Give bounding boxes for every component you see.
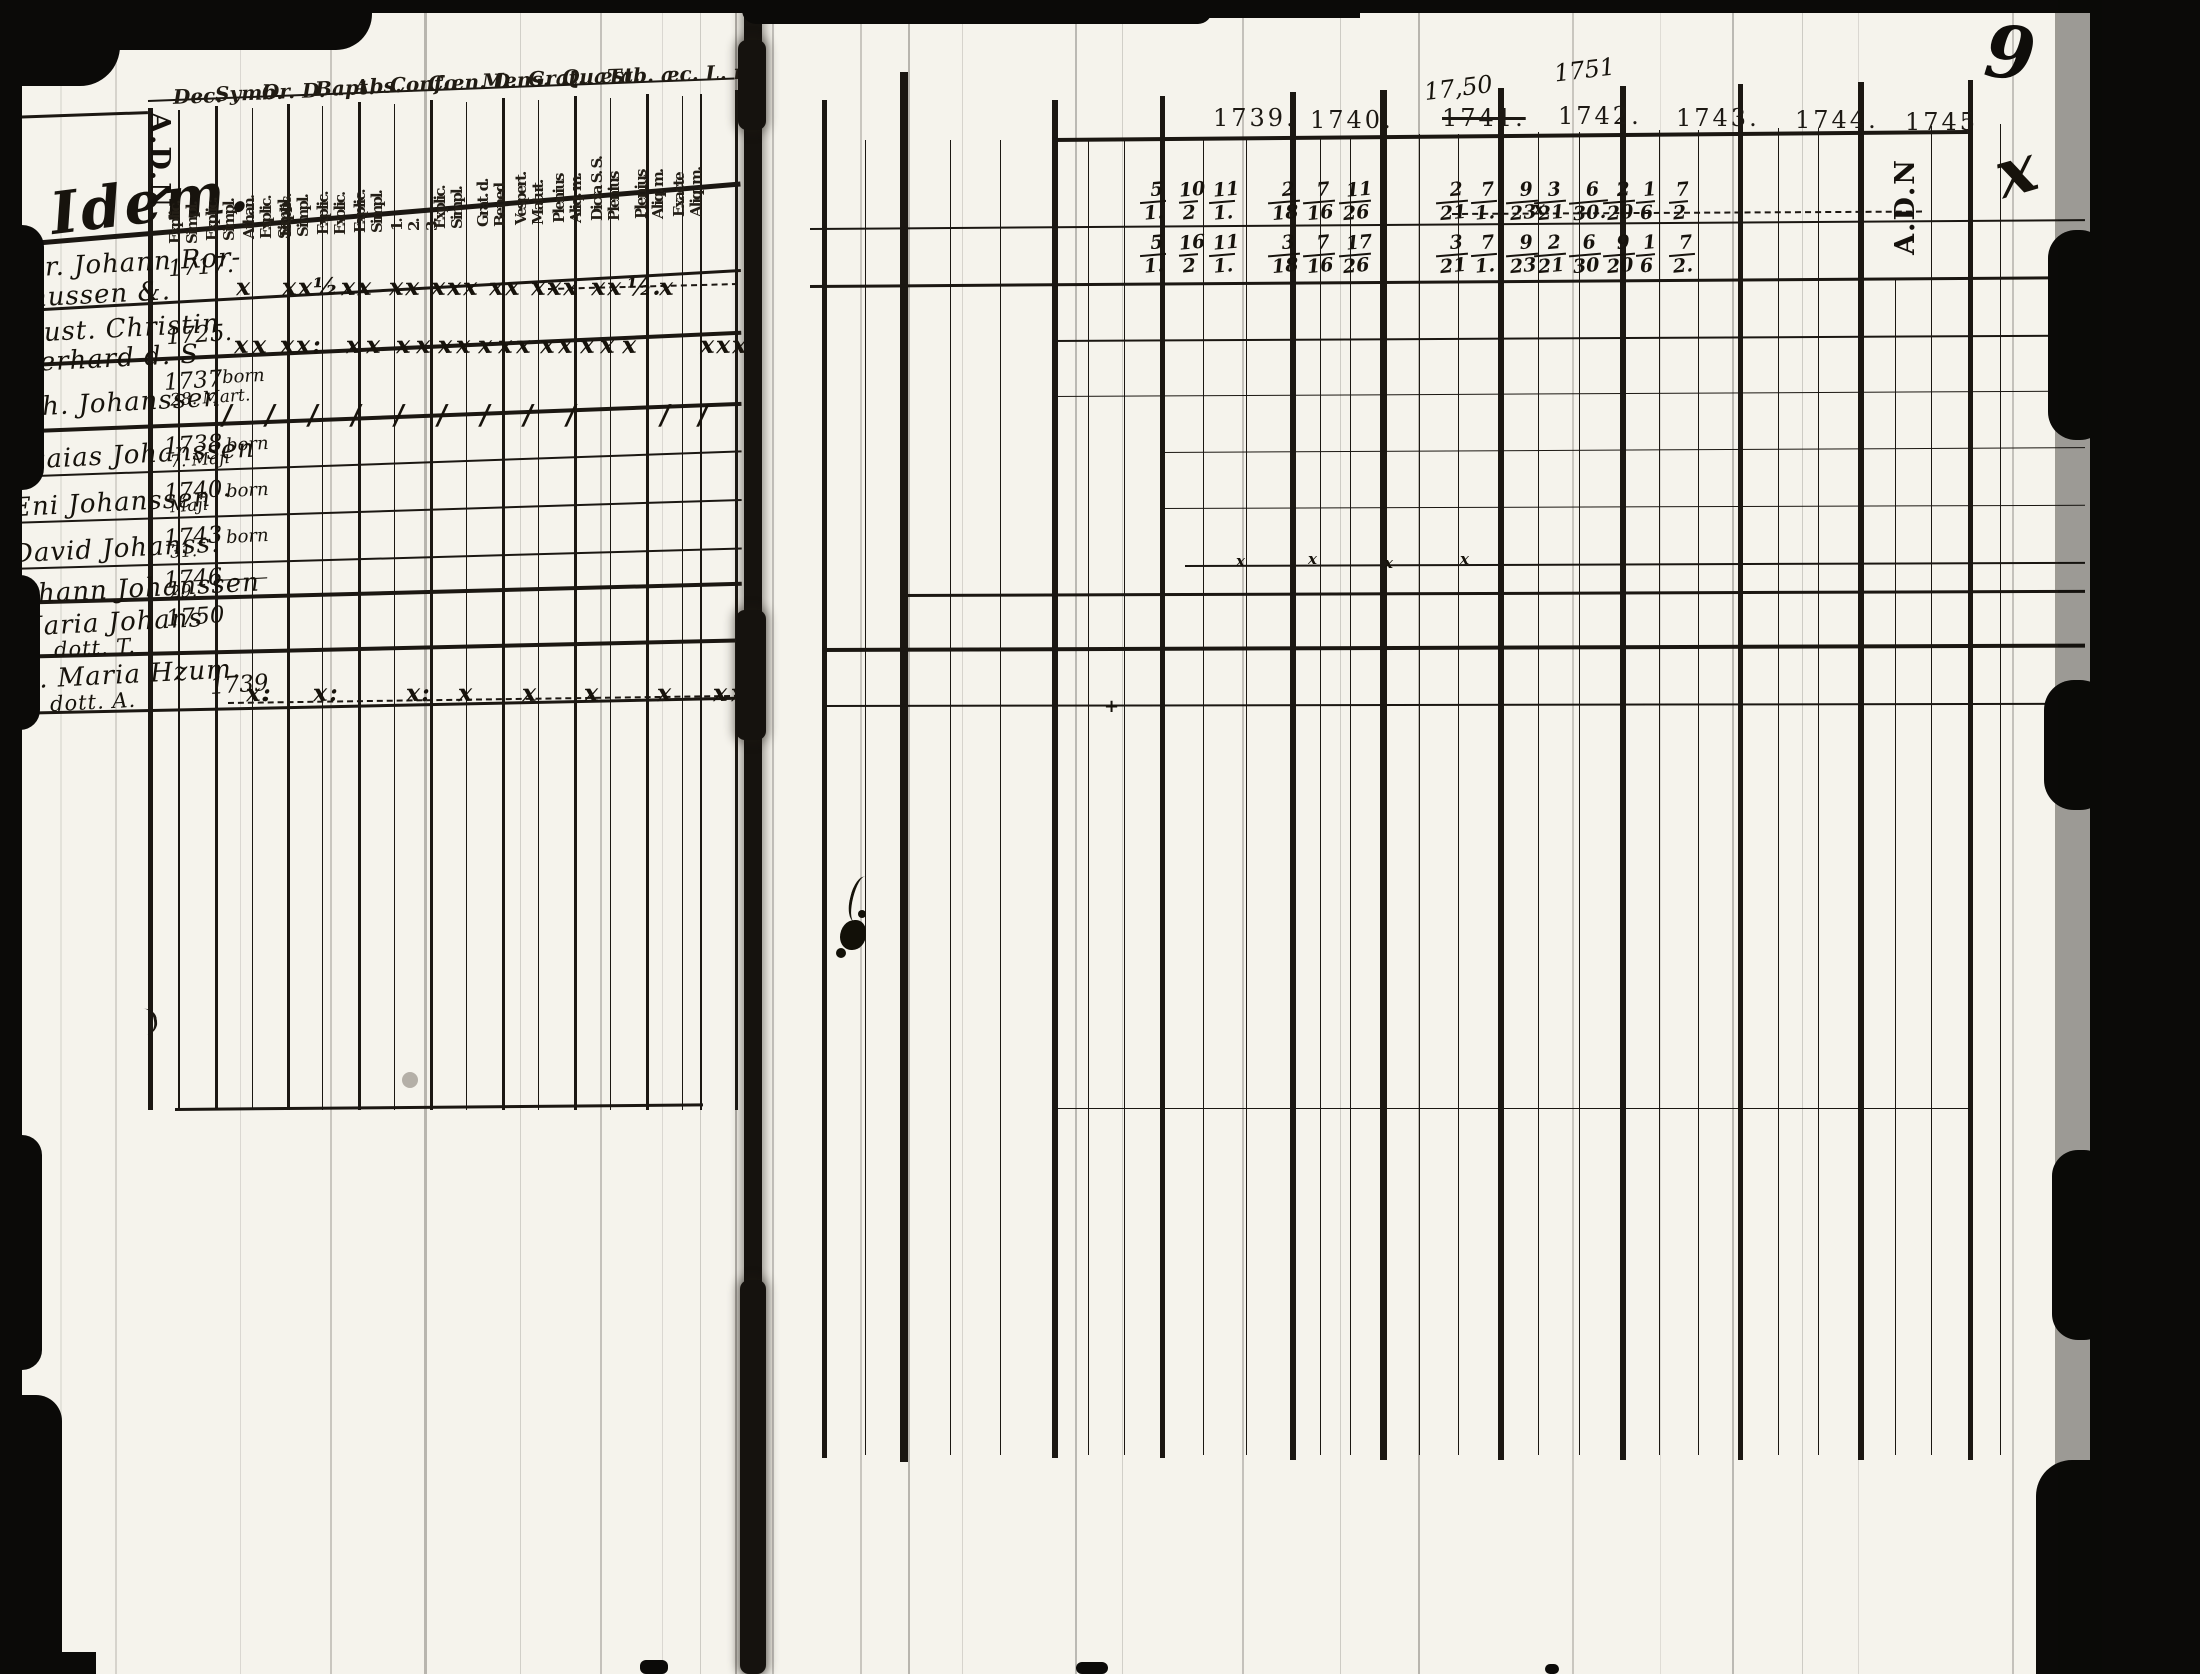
attendance-fraction: 111.	[1207, 180, 1237, 224]
fraction-part: 7	[1480, 233, 1495, 254]
attendance-fraction: 71.	[1469, 180, 1498, 224]
year-header: 1744.	[1795, 106, 1879, 134]
fraction-part: 21	[1436, 253, 1470, 278]
attendance-mark: x	[557, 330, 572, 359]
attendance-mark: x	[530, 272, 545, 301]
attendance-mark: x	[715, 330, 730, 359]
column-label-line: Simpl.	[296, 105, 311, 237]
scan-streak-artifact	[908, 0, 910, 1674]
column-label-line: Dicta S. S.	[590, 89, 605, 221]
grid-line-vertical	[950, 140, 951, 1455]
attendance-mark: x	[497, 330, 512, 359]
column-label-line: Simpl.	[450, 97, 465, 229]
grid-line-vertical	[538, 100, 539, 1110]
entry-year: 1717.	[167, 252, 235, 283]
grid-line-horizontal	[8, 111, 148, 119]
ink-blob	[836, 948, 846, 958]
attendance-mark: /	[264, 400, 275, 431]
grid-line-vertical	[1778, 128, 1779, 1455]
fraction-part: 2.	[1669, 253, 1697, 277]
entry-name: dott. A.	[49, 688, 136, 716]
column-label-line: Explic.	[433, 97, 448, 229]
column-label-line: Aliq. m.	[569, 91, 584, 223]
entry-year: 1725.	[165, 320, 233, 351]
entry-year: 28. Mart.	[169, 385, 251, 411]
grid-line-vertical	[1000, 140, 1001, 1455]
year-header: 1739.	[1213, 104, 1297, 132]
grid-line-vertical	[1052, 100, 1058, 1458]
grid-line-horizontal	[1052, 1108, 1968, 1109]
scan-edge-top-mid	[742, 0, 1212, 24]
grid-line-vertical	[822, 100, 827, 1458]
entry-year: 1750	[165, 602, 225, 632]
fraction-part: 2	[1547, 233, 1562, 254]
grid-line-vertical	[610, 98, 611, 1110]
grid-line-vertical	[1350, 136, 1351, 1455]
stray-ink-mark: x	[1460, 550, 1469, 568]
grid-line-vertical	[466, 102, 467, 1110]
scan-streak-artifact	[1242, 0, 1244, 1674]
attendance-fraction: 920	[1601, 233, 1637, 278]
ink-blob	[840, 920, 866, 950]
entry-year: 29.	[169, 581, 197, 603]
grid-line-vertical	[1698, 130, 1699, 1455]
fraction-part: 7	[1480, 180, 1495, 201]
scan-streak-artifact	[860, 0, 862, 1674]
column-label-line: Explic.	[279, 105, 294, 237]
attendance-fraction: 221	[1434, 180, 1470, 225]
year-header: 1742.	[1558, 102, 1642, 130]
attendance-fraction: 16	[1634, 233, 1657, 277]
column-label-line: Explic.	[205, 109, 220, 241]
column-label-vertical: PleniusAliq. m.	[552, 91, 585, 223]
attendance-mark: x	[233, 330, 248, 359]
header-abbreviation: Tab. æc. L. n.	[607, 59, 756, 88]
grid-line-vertical	[502, 98, 505, 1110]
attendance-mark: /	[221, 400, 232, 431]
attendance-mark: /	[350, 400, 361, 431]
attendance-mark: x	[340, 272, 355, 301]
attendance-fraction: 218	[1266, 180, 1302, 225]
stray-ink-mark: x	[1384, 554, 1393, 572]
attendance-mark: x	[295, 330, 310, 359]
attendance-fraction: 72.	[1667, 233, 1696, 277]
attendance-mark: x	[579, 330, 594, 359]
fraction-part: 9	[1616, 233, 1631, 254]
attendance-mark: x	[415, 330, 430, 359]
attendance-fraction: 321	[1434, 233, 1470, 278]
grid-line-vertical	[1538, 132, 1539, 1455]
column-label-line: Simpl.	[370, 101, 385, 233]
fraction-part: 17	[1345, 232, 1373, 254]
entry-year: 7. Maji	[169, 448, 230, 472]
entry-note: born	[225, 525, 269, 548]
scan-streak-artifact	[1075, 0, 1077, 1674]
attendance-fraction: 318	[1266, 233, 1302, 278]
attendance-mark: x	[345, 330, 360, 359]
attendance-mark: :	[261, 678, 271, 707]
scan-edge-bottom-left	[0, 1652, 96, 1674]
column-label-vertical: Dicta S. S.Plenius	[590, 89, 623, 221]
attendance-mark: /	[659, 400, 670, 431]
attendance-mark: x	[462, 272, 477, 301]
attendance-mark: /	[522, 400, 533, 431]
fraction-part: 7	[1675, 180, 1690, 201]
grid-line-vertical	[700, 94, 702, 1110]
year-header: 1741.	[1442, 104, 1526, 132]
fraction-part: 1	[1642, 180, 1657, 201]
attendance-mark: x	[395, 330, 410, 359]
right-page-number: 9	[1981, 8, 2040, 98]
column-label-line: Vespert.	[514, 93, 529, 225]
attendance-mark: /	[307, 400, 318, 431]
column-label-vertical: PleniusAliq. m.	[634, 87, 667, 219]
grid-line-horizontal	[810, 276, 2085, 288]
fraction-part: 1.	[1140, 253, 1168, 277]
grid-line-vertical	[682, 96, 683, 1110]
fraction-part: 21	[1534, 253, 1568, 278]
fraction-part: 20	[1603, 253, 1637, 278]
scan-streak-artifact	[662, 0, 663, 1674]
grid-line-vertical	[900, 72, 908, 1462]
column-label-line: Plenius	[552, 91, 567, 223]
grid-line-vertical	[1931, 126, 1932, 1455]
column-label-line: Grat. d.	[476, 95, 491, 227]
fraction-part: 2	[1669, 200, 1690, 224]
column-label-line: Exolic.	[333, 103, 348, 235]
column-label-line: Aliq. m.	[651, 87, 666, 219]
ink-squiggle	[845, 874, 875, 923]
column-label-line: Plenius	[634, 87, 649, 219]
column-label-line: Plenius	[607, 89, 622, 221]
attendance-mark: x	[477, 330, 492, 359]
scan-streak-artifact	[1660, 0, 1661, 1674]
fraction-part: 5	[1149, 180, 1164, 201]
column-label-vertical: Explic.Simpl.	[433, 97, 466, 229]
attendance-fraction: 162	[1173, 233, 1203, 277]
attendance-mark: x	[405, 678, 420, 707]
grid-line-vertical	[322, 106, 323, 1110]
fraction-part: 2	[1449, 180, 1464, 201]
attendance-mark: x	[404, 272, 419, 301]
attendance-mark: x	[539, 330, 554, 359]
attendance-mark: x	[281, 272, 296, 301]
grid-line-vertical	[1419, 134, 1420, 1455]
column-label-line: Aliq. m.	[689, 85, 704, 217]
attendance-mark: x	[455, 330, 470, 359]
attendance-mark: x	[562, 272, 577, 301]
fraction-part: 7	[1316, 180, 1331, 201]
stray-ink-mark: x	[1532, 196, 1546, 221]
book-gutter-blob	[738, 40, 766, 130]
fraction-part: 6	[1636, 200, 1657, 224]
attendance-mark: ½.	[627, 271, 661, 301]
scan-streak-artifact	[1732, 0, 1734, 1674]
column-label-line: Matut.	[531, 93, 546, 225]
fraction-part: 3	[1449, 233, 1464, 254]
attendance-mark: x	[365, 330, 380, 359]
book-gutter-blob	[736, 610, 766, 740]
attendance-fraction: 51.	[1138, 233, 1167, 277]
entry-year: Maji	[169, 495, 209, 518]
attendance-mark: x	[583, 678, 598, 707]
attendance-mark: x	[606, 272, 621, 301]
attendance-fraction: 716	[1301, 233, 1337, 278]
column-label-line: Simpl.	[185, 112, 200, 244]
paper-smudge	[402, 1072, 418, 1088]
grid-line-vertical	[430, 100, 433, 1110]
stray-ink-mark: x	[1308, 550, 1317, 568]
attendance-mark: x	[515, 330, 530, 359]
year-header: 1745	[1905, 108, 1978, 136]
column-label-line: 1.	[390, 99, 405, 231]
attendance-mark: /	[565, 400, 576, 431]
entry-name: dott. T.	[53, 634, 136, 662]
attendance-mark: x	[446, 272, 461, 301]
grid-line-vertical	[1320, 136, 1321, 1455]
scan-streak-artifact	[520, 0, 521, 1674]
grid-line-vertical	[394, 104, 395, 1110]
column-label-vertical: ExacteAliq. m.	[672, 85, 705, 217]
grid-line-vertical	[287, 104, 290, 1110]
column-label-vertical: Grat. d.Bened.	[476, 95, 509, 227]
fraction-part: 6	[1582, 233, 1597, 254]
fraction-part: 1.	[1140, 200, 1168, 224]
column-label-line: Explic.	[316, 103, 331, 235]
attendance-mark: x	[356, 272, 371, 301]
attendance-mark: /	[697, 400, 708, 431]
scan-streak-artifact	[1802, 0, 1803, 1674]
attendance-mark: x	[621, 330, 636, 359]
attendance-fraction: 630	[1567, 233, 1603, 278]
scan-streak-artifact	[330, 0, 332, 1674]
fraction-part: 26	[1339, 200, 1373, 225]
grid-line-vertical	[646, 94, 649, 1110]
attendance-mark: x	[437, 330, 452, 359]
attendance-fraction: 220	[1601, 180, 1637, 225]
stray-ink-mark: x	[1986, 128, 2045, 214]
attendance-fraction: 1726	[1337, 233, 1373, 278]
fraction-part: 20	[1603, 200, 1637, 225]
grid-line-vertical	[1620, 86, 1626, 1460]
grid-line-vertical	[1968, 80, 1973, 1460]
grid-line-vertical	[1124, 140, 1125, 1455]
attendance-fraction: 1126	[1337, 180, 1373, 225]
grid-line-vertical	[1380, 90, 1387, 1460]
entry-note: born	[225, 433, 269, 456]
attendance-mark: /	[436, 400, 447, 431]
attendance-fraction: 102	[1173, 180, 1203, 224]
fraction-part: 1	[1642, 233, 1657, 254]
column-label-line: Exacte	[672, 85, 687, 217]
entry-note: ———	[213, 567, 268, 591]
column-label-vertical: Explic.Simpl.	[353, 101, 386, 233]
attendance-mark: x	[699, 330, 714, 359]
attendance-mark: x	[658, 272, 673, 301]
fraction-part: 16	[1303, 200, 1337, 225]
scan-edge-left-blob	[0, 1395, 62, 1674]
column-label-line: Athan.	[242, 107, 257, 239]
edge-column-header-adn: A.D.N	[1890, 158, 1921, 255]
grid-line-vertical	[1246, 140, 1247, 1455]
scan-edge-right-fringe	[2058, 0, 2102, 1674]
entry-note: born	[225, 479, 269, 502]
fraction-part: 2	[1179, 253, 1200, 277]
attendance-mark: ½	[313, 272, 339, 302]
grid-line-vertical	[1858, 82, 1864, 1460]
grid-line-vertical	[1290, 92, 1296, 1460]
fraction-part: 30	[1569, 253, 1603, 278]
grid-line-vertical	[358, 102, 361, 1110]
fraction-part: 7	[1316, 233, 1331, 254]
fraction-part: 26	[1339, 253, 1373, 278]
ink-hook-mark	[142, 1007, 158, 1035]
fraction-part: 11	[1212, 232, 1240, 254]
fraction-part: 1.	[1209, 253, 1237, 277]
year-header: 1743.	[1676, 104, 1760, 132]
scan-streak-artifact	[962, 0, 963, 1674]
attendance-mark: x	[599, 330, 614, 359]
stray-ink-mark: x	[1236, 552, 1245, 570]
attendance-fraction: 72	[1667, 180, 1690, 224]
attendance-mark: x	[388, 272, 403, 301]
attendance-mark: x	[546, 272, 561, 301]
attendance-fraction: 16	[1634, 180, 1657, 224]
column-label-line: Explic.	[353, 101, 368, 233]
scan-edge-top-mid	[1150, 0, 1360, 18]
book-gutter-blob	[740, 1280, 766, 1674]
grid-line-vertical	[1498, 88, 1504, 1460]
attendance-fraction: 221	[1532, 233, 1568, 278]
column-label-line: Bened.	[493, 95, 508, 227]
fraction-part: 18	[1268, 253, 1302, 278]
grid-line-vertical	[252, 108, 253, 1110]
fraction-part: 16	[1178, 232, 1206, 254]
attendance-mark: x	[312, 678, 327, 707]
attendance-mark: x	[521, 678, 536, 707]
column-label-vertical: Explic.Simpl.	[205, 109, 238, 241]
attendance-mark: x	[504, 272, 519, 301]
fraction-part: 10	[1178, 179, 1206, 201]
attendance-fraction: 716	[1301, 180, 1337, 225]
scan-edge-bottom-speck	[1076, 1662, 1108, 1674]
grid-line-horizontal	[175, 1103, 703, 1111]
fraction-part: 11	[1212, 179, 1240, 201]
attendance-mark: x	[712, 678, 727, 707]
grid-line-vertical	[1203, 140, 1204, 1455]
scan-edge-bottom-speck	[1545, 1664, 1559, 1674]
scan-edge-bottom-speck	[640, 1660, 668, 1674]
fraction-part: 16	[1303, 253, 1337, 278]
fraction-part: 11	[1345, 179, 1373, 201]
column-label-vertical: Explic.Simpl.	[168, 112, 201, 244]
column-label-line: Simpl.	[222, 109, 237, 241]
grid-line-vertical	[1895, 280, 1896, 1455]
grid-line-vertical	[1160, 96, 1165, 1458]
grid-line-vertical	[865, 140, 866, 1455]
fraction-part: 5	[1149, 233, 1164, 254]
column-label-vertical: Vespert.Matut.	[514, 93, 547, 225]
scan-streak-artifact	[2012, 0, 2014, 1674]
column-label-line: Explic.	[259, 107, 274, 239]
stray-ink-mark: +	[1104, 696, 1119, 717]
attendance-mark: /	[479, 400, 490, 431]
grid-line-vertical	[1818, 128, 1819, 1455]
grid-line-horizontal	[900, 590, 2085, 597]
attendance-fraction: 51.	[1138, 180, 1167, 224]
scan-streak-artifact	[424, 0, 427, 1674]
attendance-mark: x	[279, 330, 294, 359]
fraction-part: 6	[1636, 253, 1657, 277]
fraction-part: 1.	[1471, 253, 1499, 277]
column-label-vertical: Explic.Exolic.	[316, 103, 349, 235]
column-label-line: Explic.	[168, 112, 183, 244]
fraction-part: 1.	[1471, 200, 1499, 224]
grid-line-vertical	[2000, 124, 2001, 1455]
attendance-mark: x	[430, 272, 445, 301]
entry-year: 31.	[169, 541, 197, 563]
year-header: 1740.	[1310, 106, 1394, 134]
attendance-mark: x	[251, 330, 266, 359]
attendance-mark: :	[420, 678, 430, 707]
attendance-fraction: 111.	[1207, 233, 1237, 277]
grid-line-vertical	[574, 96, 577, 1110]
attendance-mark: x	[656, 678, 671, 707]
attendance-mark: x	[297, 272, 312, 301]
scan-edge-left-blob	[0, 1135, 42, 1370]
scan-edge-left-blob	[0, 575, 40, 730]
fraction-part: 18	[1268, 200, 1302, 225]
scanned-register-spread: 8. Idem. A.D.N 9 A.D.N Explic.Simpl.Expl…	[0, 0, 2200, 1674]
fraction-part: 6	[1585, 180, 1600, 201]
attendance-mark: x	[235, 272, 250, 301]
fraction-part: 2	[1281, 180, 1296, 201]
scan-streak-artifact	[1122, 0, 1123, 1674]
year-correction-handwritten: 17,50	[1423, 70, 1495, 106]
column-label-vertical: Explic.Simpl.	[279, 105, 312, 237]
fraction-part: 21	[1436, 200, 1470, 225]
scan-streak-artifact	[772, 0, 774, 1674]
grid-line-vertical	[1659, 130, 1660, 1455]
attendance-mark: x	[457, 678, 472, 707]
grid-line-vertical	[735, 90, 738, 1110]
attendance-mark: x	[590, 272, 605, 301]
year-correction-handwritten: 1751	[1553, 52, 1617, 87]
attendance-mark: :	[328, 678, 338, 707]
grid-line-vertical	[1088, 140, 1089, 1455]
entry-note: born	[221, 365, 265, 388]
scan-edge-left-blob	[0, 225, 44, 490]
fraction-part: 7	[1678, 233, 1693, 254]
attendance-mark: x	[488, 272, 503, 301]
fraction-part: 2	[1179, 200, 1200, 224]
fraction-part: 3	[1281, 233, 1296, 254]
grid-line-vertical	[1458, 134, 1459, 1455]
fraction-part: 2	[1616, 180, 1631, 201]
grid-line-vertical	[1738, 84, 1743, 1460]
attendance-mark: /	[393, 400, 404, 431]
attendance-mark: :	[311, 330, 321, 359]
column-label-line: 2.	[407, 99, 422, 231]
scan-streak-artifact	[600, 0, 602, 1674]
attendance-fraction: 71.	[1469, 233, 1498, 277]
fraction-part: 1.	[1209, 200, 1237, 224]
fraction-part: 3	[1547, 180, 1562, 201]
grid-line-vertical	[1579, 132, 1580, 1455]
